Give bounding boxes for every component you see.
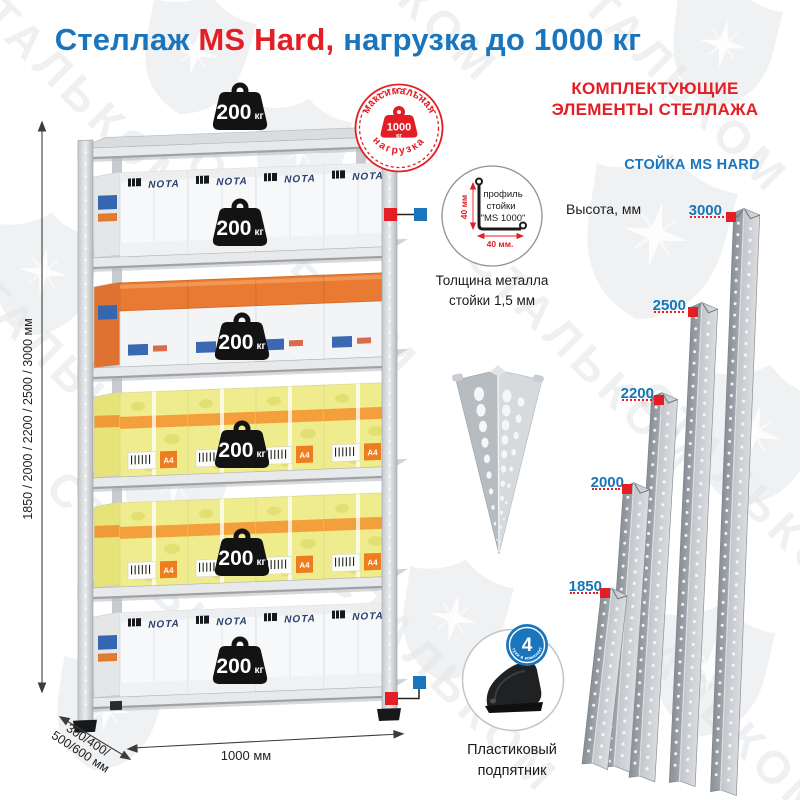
components-header-line2: ЭЛЕМЕНТЫ СТЕЛЛАЖА bbox=[540, 99, 770, 120]
corner-post-perspective bbox=[446, 358, 550, 566]
quantity-badge-value: 4 bbox=[522, 635, 533, 656]
shelf-load-weight-icon: 200кг bbox=[200, 636, 280, 686]
profile-caption-2: стойки bbox=[486, 201, 515, 212]
title-part-blue: Стеллаж bbox=[55, 22, 199, 57]
box-brand-text: NOTA bbox=[352, 611, 384, 623]
shelf-load-weight-icon: 200кг bbox=[202, 528, 282, 578]
profile-caption-1: профиль bbox=[483, 189, 522, 200]
load-value: 200 bbox=[218, 547, 253, 570]
profile-dim-horizontal: 40 мм. bbox=[487, 239, 514, 249]
shelf-load-weight-icon: 200кг bbox=[202, 420, 282, 470]
dotted-leader bbox=[654, 311, 684, 313]
dotted-leader bbox=[622, 399, 652, 401]
load-value: 200 bbox=[216, 217, 251, 240]
load-unit: кг bbox=[254, 111, 263, 122]
width-dimension-label: 1000 мм bbox=[198, 748, 294, 763]
callout-marker-blue bbox=[413, 676, 426, 689]
components-header-line1: КОМПЛЕКТУЮЩИЕ bbox=[540, 78, 770, 99]
callout-marker-blue bbox=[414, 208, 427, 221]
post-top-marker bbox=[726, 212, 736, 222]
quantity-badge: штуки в комплекте 4 bbox=[505, 623, 549, 667]
load-unit: кг bbox=[256, 557, 265, 568]
post-top-marker bbox=[688, 307, 698, 317]
components-header: КОМПЛЕКТУЮЩИЕ ЭЛЕМЕНТЫ СТЕЛЛАЖА bbox=[540, 78, 770, 120]
load-unit: кг bbox=[254, 227, 263, 238]
post-top-marker bbox=[654, 395, 664, 405]
box-a4-label: A4 bbox=[299, 561, 310, 570]
box-brand-text: NOTA bbox=[284, 173, 316, 185]
post-subheader: СТОЙКА MS HARD bbox=[607, 157, 777, 173]
load-unit: кг bbox=[256, 341, 265, 352]
post-profile-callout: 40 мм 40 мм. профиль стойки "MS 1000" bbox=[440, 164, 544, 268]
box-a4-label: A4 bbox=[163, 456, 174, 465]
page-title: Стеллаж MS Hard, нагрузка до 1000 кг bbox=[10, 22, 686, 58]
load-value: 200 bbox=[218, 439, 253, 462]
dotted-leader bbox=[690, 216, 724, 218]
metal-thickness-note: Толщина металла стойки 1,5 мм bbox=[412, 271, 572, 312]
profile-caption-3: "MS 1000" bbox=[481, 213, 526, 224]
box-a4-label: A4 bbox=[367, 448, 378, 457]
foot-label-line2: подпятник bbox=[432, 761, 592, 782]
load-value: 200 bbox=[216, 655, 251, 678]
profile-dim-vertical: 40 мм bbox=[459, 195, 469, 219]
box-brand-text: NOTA bbox=[216, 176, 248, 188]
box-brand-text: NOTA bbox=[284, 613, 316, 625]
dotted-leader bbox=[592, 488, 620, 490]
shelving-infographic: СТАЛЬКОМ СТАЛЬКОМ СТАЛЬКОМ СТАЛЬКОМ СТАЛ… bbox=[0, 0, 800, 800]
post-top-marker bbox=[600, 588, 610, 598]
load-unit: кг bbox=[254, 665, 263, 676]
max-load-badge: максимальная нагрузка 1000 кг bbox=[353, 82, 445, 174]
rack-foot-right bbox=[377, 708, 401, 721]
box-brand-text: NOTA bbox=[216, 616, 248, 628]
box-brand-text: NOTA bbox=[148, 179, 180, 191]
thickness-line2: стойки 1,5 мм bbox=[412, 291, 572, 311]
callout-marker-red bbox=[385, 692, 398, 705]
load-unit: кг bbox=[256, 449, 265, 460]
box-a4-label: A4 bbox=[163, 566, 174, 575]
height-dimension-label: 1850 / 2000 / 2200 / 2500 / 3000 мм bbox=[21, 274, 35, 564]
title-part-red: MS Hard, bbox=[198, 22, 334, 57]
box-brand-text: NOTA bbox=[148, 619, 180, 631]
shelf-load-weight-icon: 200кг bbox=[202, 312, 282, 362]
plastic-foot-label: Пластиковый подпятник bbox=[432, 740, 592, 782]
height-caption: Высота, мм bbox=[566, 201, 641, 217]
shelf-load-weight-icon: 200кг bbox=[200, 82, 280, 132]
dotted-leader bbox=[570, 592, 598, 594]
title-part-blue2: нагрузка до 1000 кг bbox=[334, 22, 641, 57]
load-value: 200 bbox=[216, 101, 251, 124]
rack-foot-back bbox=[110, 701, 122, 710]
callout-marker-red bbox=[384, 208, 397, 221]
post-top-marker bbox=[622, 484, 632, 494]
thickness-line1: Толщина металла bbox=[412, 271, 572, 291]
box-a4-label: A4 bbox=[299, 451, 310, 460]
badge-weight-unit: кг bbox=[396, 133, 402, 140]
shelf-load-weight-icon: 200кг bbox=[200, 198, 280, 248]
foot-label-line1: Пластиковый bbox=[432, 740, 592, 761]
load-value: 200 bbox=[218, 331, 253, 354]
box-a4-label: A4 bbox=[367, 558, 378, 567]
